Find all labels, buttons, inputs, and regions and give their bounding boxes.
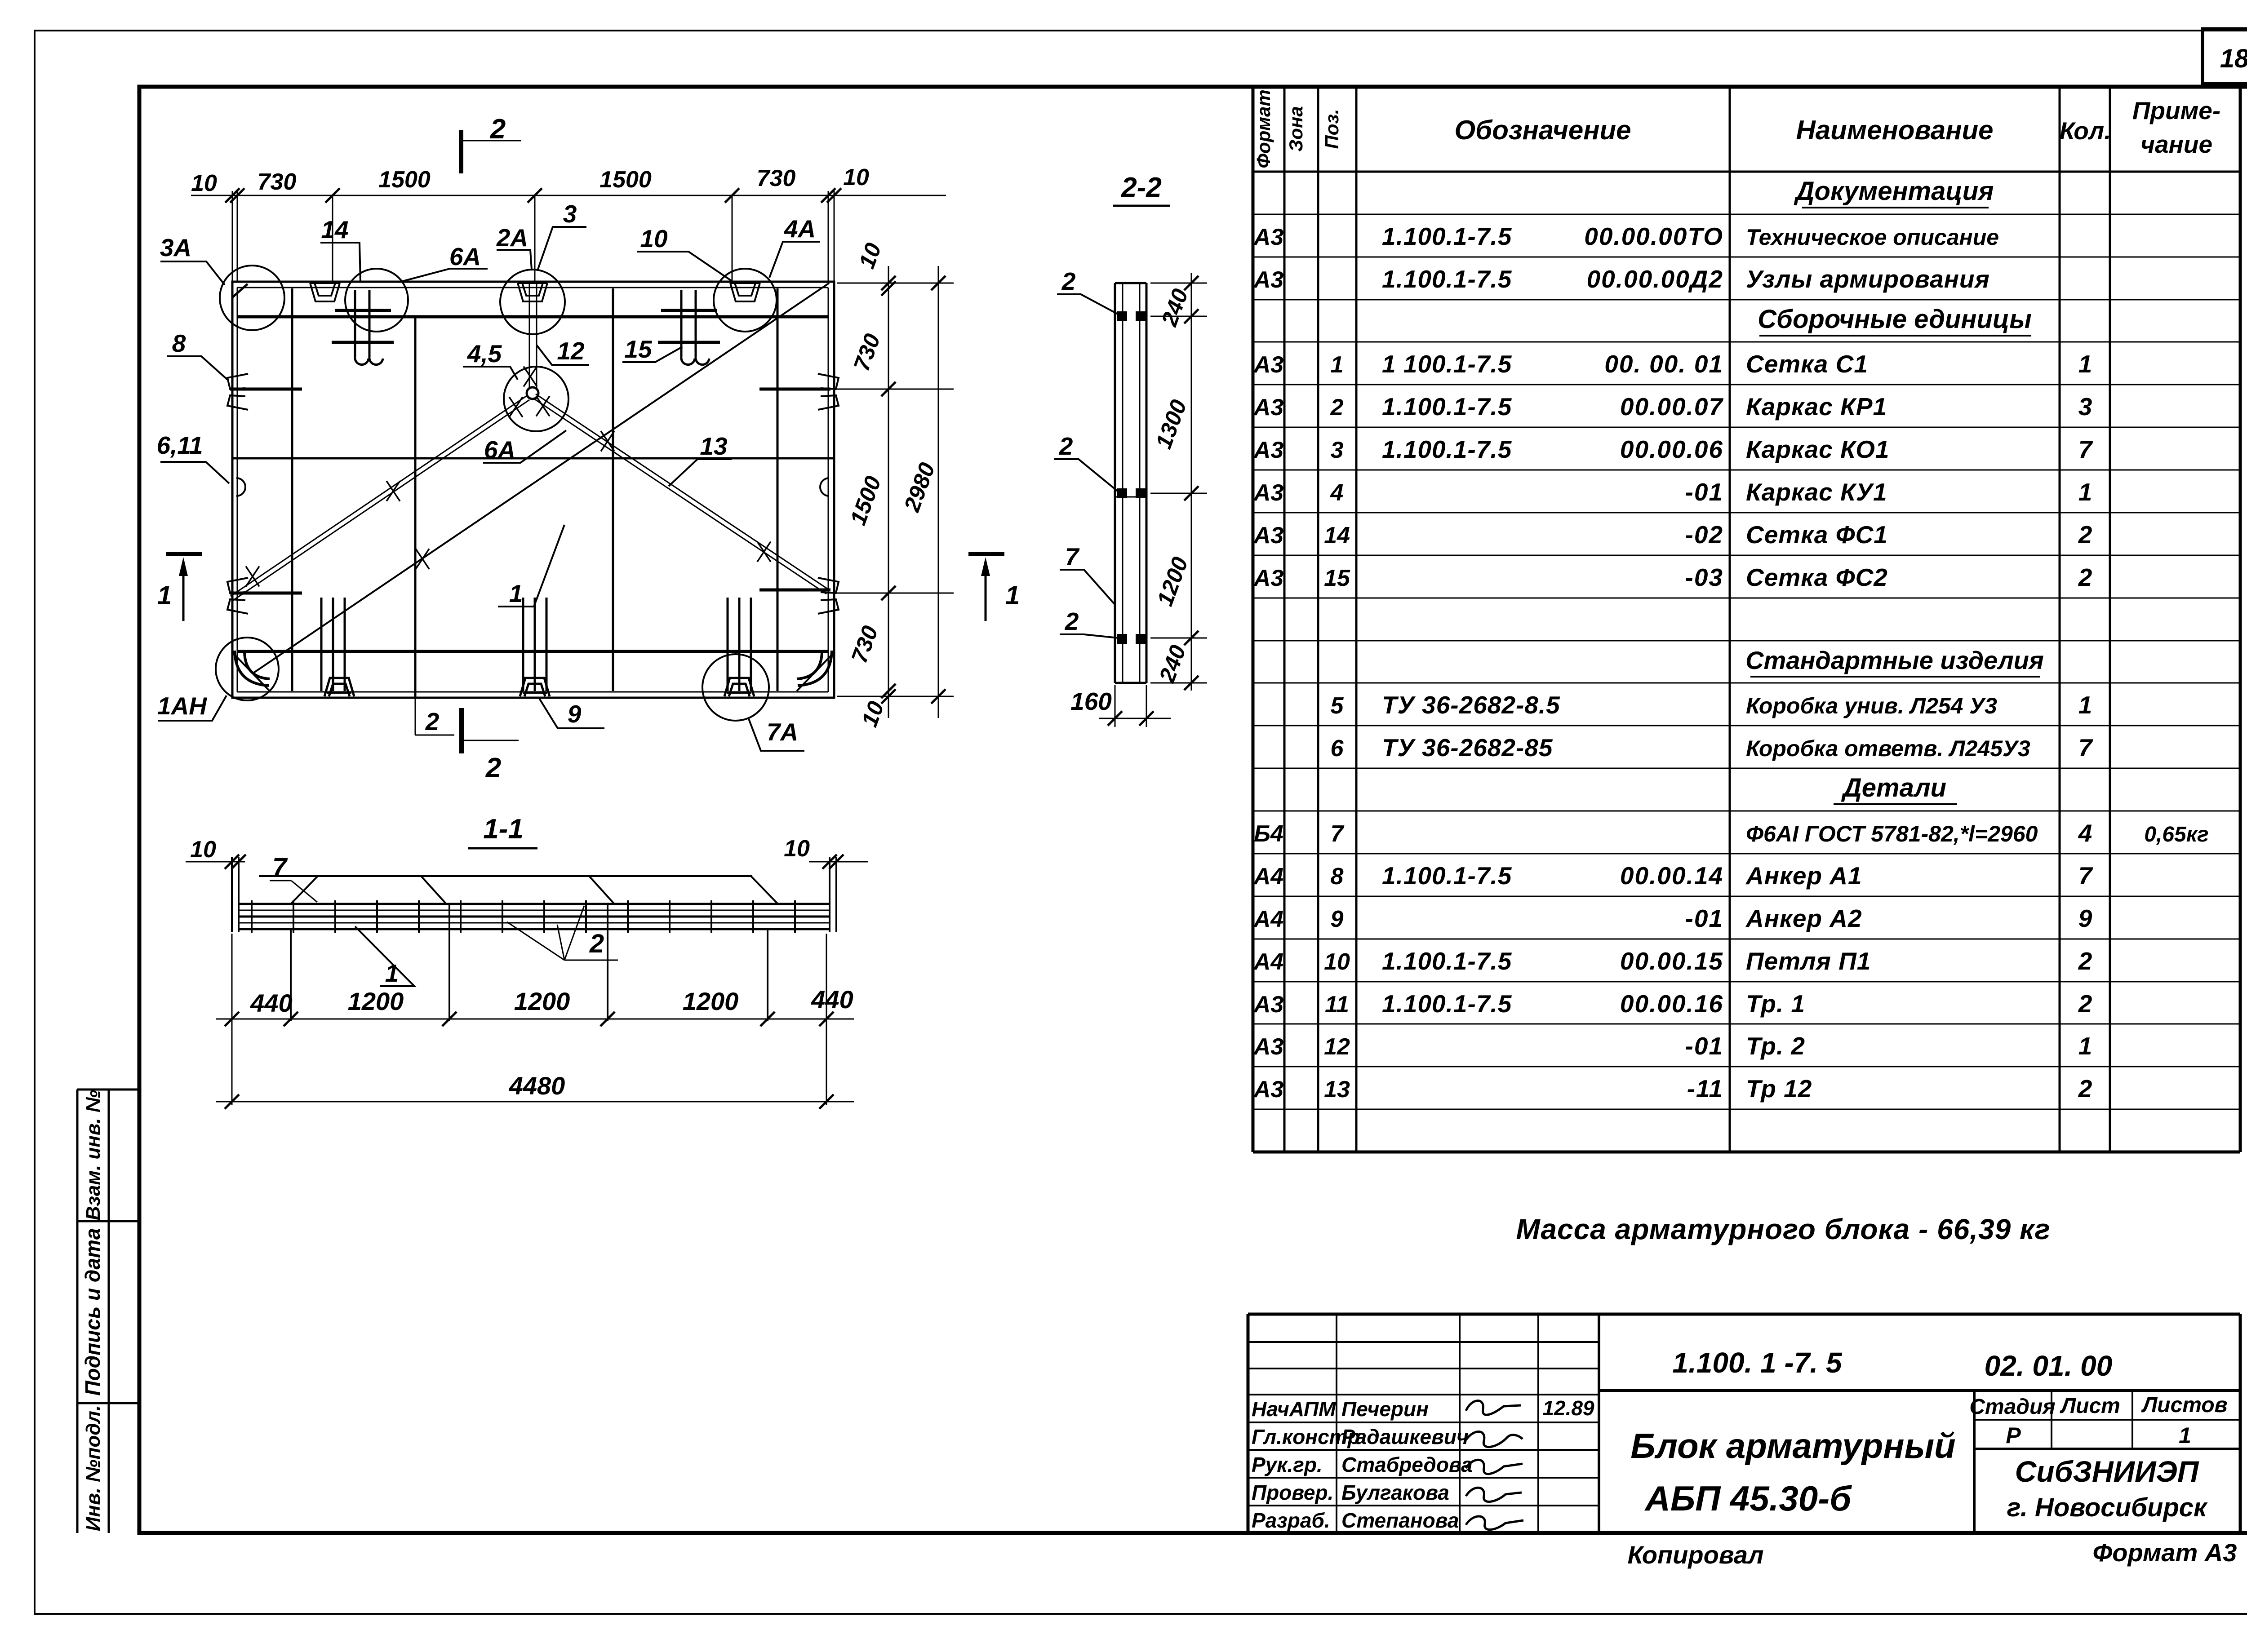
svg-text:2: 2 — [2078, 521, 2092, 549]
svg-text:Масса арматурного блока - 6: Масса арматурного блока - 66,39 кг — [1516, 1213, 2050, 1245]
svg-text:2: 2 — [485, 753, 501, 784]
svg-text:Техническое описание: Техническое описание — [1746, 225, 1999, 250]
svg-text:730: 730 — [258, 169, 297, 195]
svg-text:2: 2 — [1059, 432, 1073, 460]
svg-text:6А: 6А — [449, 243, 481, 270]
svg-text:00. 00. 01: 00. 00. 01 — [1604, 350, 1723, 378]
svg-text:2: 2 — [425, 708, 440, 735]
svg-text:7: 7 — [1331, 821, 1345, 847]
svg-text:Копировал: Копировал — [1627, 1541, 1763, 1569]
svg-text:Блок арматурный: Блок арматурный — [1630, 1426, 1955, 1466]
svg-text:НачАПМ: НачАПМ — [1252, 1397, 1337, 1421]
svg-text:Лист: Лист — [2060, 1394, 2120, 1418]
svg-text:А4: А4 — [1253, 906, 1284, 932]
svg-text:02. 01. 00: 02. 01. 00 — [1985, 1350, 2113, 1382]
svg-text:1500: 1500 — [599, 167, 652, 193]
svg-text:А3: А3 — [1253, 480, 1284, 506]
svg-text:7: 7 — [272, 853, 288, 882]
svg-text:Р: Р — [2006, 1423, 2021, 1448]
svg-text:1: 1 — [157, 581, 172, 610]
svg-text:Б4: Б4 — [1254, 821, 1283, 847]
svg-text:Наименование: Наименование — [1796, 115, 1993, 145]
svg-text:7А: 7А — [767, 718, 798, 746]
svg-text:Каркас КУ1: Каркас КУ1 — [1746, 478, 1887, 506]
svg-text:1.100. 1 -7. 5: 1.100. 1 -7. 5 — [1672, 1346, 1843, 1379]
svg-text:4: 4 — [2078, 819, 2092, 847]
svg-text:А3: А3 — [1253, 437, 1284, 463]
svg-text:2980: 2980 — [899, 459, 940, 515]
svg-text:СибЗНИИЭП: СибЗНИИЭП — [2015, 1455, 2199, 1488]
svg-text:3А: 3А — [160, 234, 191, 261]
svg-text:А3: А3 — [1253, 394, 1284, 421]
svg-text:3: 3 — [2078, 393, 2092, 421]
svg-text:00.00.00ТО: 00.00.00ТО — [1584, 222, 1723, 250]
svg-text:2-2: 2-2 — [1121, 172, 1162, 203]
svg-text:1200: 1200 — [683, 987, 739, 1015]
svg-text:А3: А3 — [1253, 565, 1284, 591]
svg-text:15: 15 — [624, 335, 653, 363]
svg-text:А3: А3 — [1253, 1034, 1284, 1060]
svg-text:1: 1 — [509, 580, 523, 607]
svg-text:9: 9 — [2078, 904, 2092, 932]
svg-text:10: 10 — [784, 836, 810, 862]
svg-text:2: 2 — [1330, 394, 1344, 421]
svg-text:Сетка ФС1: Сетка ФС1 — [1746, 521, 1888, 549]
svg-text:Формат А3: Формат А3 — [2093, 1538, 2237, 1567]
svg-text:Приме-: Приме- — [2132, 97, 2220, 124]
svg-text:1 100.1-7.5: 1 100.1-7.5 — [1382, 350, 1512, 378]
svg-text:А3: А3 — [1253, 267, 1284, 293]
svg-text:А4: А4 — [1253, 949, 1284, 975]
svg-text:2А: 2А — [496, 224, 528, 252]
svg-text:-01: -01 — [1685, 904, 1724, 932]
svg-text:18: 18 — [2220, 44, 2247, 73]
svg-text:чание: чание — [2140, 130, 2212, 158]
svg-text:3: 3 — [1331, 437, 1344, 463]
svg-text:Каркас КР1: Каркас КР1 — [1746, 393, 1887, 421]
svg-text:10: 10 — [190, 837, 216, 863]
svg-text:15: 15 — [1324, 565, 1350, 591]
svg-text:Подпись и дата: Подпись и дата — [81, 1228, 104, 1396]
svg-text:1200: 1200 — [514, 987, 570, 1015]
svg-text:Поз.: Поз. — [1321, 109, 1342, 149]
svg-text:1: 1 — [1005, 581, 1020, 610]
svg-text:АБП 45.30-б: АБП 45.30-б — [1644, 1479, 1852, 1518]
svg-text:4: 4 — [1330, 480, 1344, 506]
svg-text:730: 730 — [757, 165, 796, 191]
svg-text:Ф6АI ГОСТ 5781-82,*l=2960: Ф6АI ГОСТ 5781-82,*l=2960 — [1746, 821, 2038, 846]
svg-text:0,65кг: 0,65кг — [2144, 823, 2208, 846]
svg-text:Стабредова: Стабредова — [1341, 1453, 1473, 1476]
svg-text:Формат: Формат — [1253, 89, 1274, 168]
svg-text:1.100.1-7.5: 1.100.1-7.5 — [1382, 265, 1512, 293]
svg-text:8: 8 — [1331, 864, 1344, 890]
svg-text:Детали: Детали — [1841, 773, 1946, 802]
svg-text:12.89: 12.89 — [1542, 1396, 1594, 1420]
svg-text:-02: -02 — [1685, 521, 1724, 549]
svg-text:160: 160 — [1070, 687, 1112, 715]
svg-text:8: 8 — [172, 329, 186, 357]
svg-text:4,5: 4,5 — [467, 340, 502, 368]
svg-text:2: 2 — [2078, 947, 2092, 975]
svg-text:Провер.: Провер. — [1252, 1481, 1333, 1504]
svg-text:00.00.16: 00.00.16 — [1620, 990, 1723, 1018]
svg-text:1: 1 — [2078, 1032, 2092, 1060]
svg-text:2: 2 — [1061, 267, 1076, 295]
svg-text:00.00.14: 00.00.14 — [1620, 862, 1723, 890]
svg-text:1: 1 — [2078, 478, 2092, 506]
svg-text:2: 2 — [490, 114, 506, 145]
svg-text:г. Новосибирск: г. Новосибирск — [2007, 1493, 2208, 1522]
svg-text:00.00.07: 00.00.07 — [1620, 393, 1724, 421]
svg-text:1.100.1-7.5: 1.100.1-7.5 — [1382, 990, 1512, 1018]
svg-text:-01: -01 — [1685, 478, 1724, 506]
svg-text:А3: А3 — [1253, 992, 1284, 1018]
svg-text:9: 9 — [1331, 906, 1344, 932]
svg-text:4А: 4А — [784, 215, 816, 243]
svg-text:6А: 6А — [484, 436, 515, 464]
svg-text:Инв. №подл.: Инв. №подл. — [82, 1405, 104, 1531]
svg-text:12: 12 — [1324, 1034, 1350, 1060]
svg-text:1.100.1-7.5: 1.100.1-7.5 — [1382, 435, 1512, 463]
svg-text:7: 7 — [1065, 543, 1080, 571]
svg-text:Стадия: Стадия — [1969, 1395, 2055, 1419]
svg-text:Стандартные изделия: Стандартные изделия — [1745, 646, 2044, 674]
svg-text:10: 10 — [191, 170, 217, 196]
svg-text:00.00.00Д2: 00.00.00Д2 — [1587, 265, 1723, 293]
svg-text:240: 240 — [1154, 642, 1191, 686]
svg-text:ТУ 36-2682-8.5: ТУ 36-2682-8.5 — [1382, 691, 1560, 719]
svg-text:1: 1 — [1331, 352, 1344, 378]
svg-text:2: 2 — [2078, 1075, 2092, 1103]
svg-text:14: 14 — [1324, 523, 1350, 549]
svg-text:1: 1 — [2078, 691, 2092, 719]
svg-text:440: 440 — [811, 985, 853, 1014]
svg-text:-01: -01 — [1685, 1032, 1724, 1060]
svg-text:А4: А4 — [1253, 864, 1284, 890]
svg-text:10: 10 — [1324, 949, 1350, 975]
svg-text:Тр. 1: Тр. 1 — [1746, 990, 1805, 1018]
svg-text:А3: А3 — [1253, 224, 1284, 250]
svg-text:9: 9 — [568, 700, 582, 728]
svg-text:А3: А3 — [1253, 1076, 1284, 1103]
svg-text:6: 6 — [1331, 735, 1344, 762]
svg-text:440: 440 — [250, 989, 292, 1017]
svg-text:1.100.1-7.5: 1.100.1-7.5 — [1382, 947, 1512, 975]
svg-text:Зона: Зона — [1285, 106, 1306, 151]
svg-text:ТУ 36-2682-85: ТУ 36-2682-85 — [1382, 734, 1553, 762]
svg-text:1300: 1300 — [1151, 396, 1192, 452]
svg-text:Разраб.: Разраб. — [1252, 1509, 1330, 1532]
svg-text:1: 1 — [2179, 1423, 2191, 1448]
svg-text:1200: 1200 — [1152, 554, 1193, 609]
svg-text:Анкер А1: Анкер А1 — [1745, 862, 1862, 890]
svg-text:Документация: Документация — [1794, 177, 1994, 206]
svg-text:13: 13 — [700, 432, 727, 460]
svg-text:Анкер А2: Анкер А2 — [1745, 904, 1862, 932]
svg-text:1.100.1-7.5: 1.100.1-7.5 — [1382, 862, 1512, 890]
svg-text:Сетка С1: Сетка С1 — [1746, 350, 1868, 378]
svg-text:10: 10 — [857, 698, 889, 730]
svg-text:10: 10 — [843, 164, 869, 190]
svg-text:2: 2 — [589, 929, 604, 958]
svg-text:2: 2 — [2078, 990, 2092, 1018]
svg-text:Коробка унив. Л254 У3: Коробка унив. Л254 У3 — [1746, 693, 1997, 718]
svg-text:7: 7 — [2078, 862, 2093, 890]
svg-text:1-1: 1-1 — [483, 814, 524, 845]
svg-text:Сборочные единицы: Сборочные единицы — [1758, 305, 2032, 334]
svg-text:730: 730 — [848, 330, 885, 374]
svg-text:А3: А3 — [1253, 523, 1284, 549]
svg-text:11: 11 — [1325, 992, 1349, 1018]
svg-text:Узлы армирования: Узлы армирования — [1746, 265, 1990, 293]
svg-text:Каркас КО1: Каркас КО1 — [1746, 435, 1889, 463]
svg-text:1: 1 — [2078, 350, 2092, 378]
svg-text:7: 7 — [2078, 734, 2093, 762]
svg-text:Булгакова: Булгакова — [1341, 1481, 1449, 1504]
svg-text:1.100.1-7.5: 1.100.1-7.5 — [1382, 393, 1512, 421]
svg-text:12: 12 — [557, 337, 585, 365]
svg-text:Сетка ФС2: Сетка ФС2 — [1746, 563, 1888, 591]
svg-text:Обозначение: Обозначение — [1454, 115, 1631, 145]
svg-text:Печерин: Печерин — [1341, 1397, 1429, 1421]
svg-text:Тр 12: Тр 12 — [1746, 1075, 1812, 1103]
svg-text:3: 3 — [563, 200, 577, 228]
svg-text:00.00.06: 00.00.06 — [1620, 435, 1723, 463]
svg-text:5: 5 — [1331, 693, 1344, 719]
svg-text:10: 10 — [854, 239, 886, 272]
svg-text:13: 13 — [1324, 1076, 1350, 1103]
svg-text:1500: 1500 — [378, 167, 431, 193]
svg-text:Коробка ответв. Л245У3: Коробка ответв. Л245У3 — [1746, 736, 2030, 761]
svg-text:1500: 1500 — [845, 473, 886, 528]
svg-text:00.00.15: 00.00.15 — [1620, 947, 1723, 975]
svg-text:6,11: 6,11 — [157, 431, 203, 459]
svg-text:14: 14 — [321, 216, 348, 244]
svg-text:240: 240 — [1156, 285, 1193, 330]
svg-text:Рук.гр.: Рук.гр. — [1252, 1453, 1323, 1476]
svg-text:Петля П1: Петля П1 — [1746, 947, 1871, 975]
svg-text:Листов: Листов — [2141, 1393, 2227, 1417]
svg-text:7: 7 — [2078, 435, 2093, 463]
svg-text:Степанова: Степанова — [1341, 1509, 1459, 1532]
svg-text:-11: -11 — [1687, 1075, 1723, 1103]
svg-text:1АН: 1АН — [157, 692, 207, 720]
svg-text:730: 730 — [846, 622, 883, 666]
svg-text:1200: 1200 — [348, 987, 404, 1015]
svg-text:Радашкевич: Радашкевич — [1341, 1425, 1469, 1448]
svg-text:Тр. 2: Тр. 2 — [1746, 1032, 1805, 1060]
svg-text:Кол.: Кол. — [2060, 117, 2111, 145]
svg-text:А3: А3 — [1253, 352, 1284, 378]
svg-text:2: 2 — [1065, 607, 1079, 635]
svg-text:Взам. инв. №: Взам. инв. № — [82, 1090, 104, 1221]
svg-text:4480: 4480 — [509, 1072, 565, 1100]
svg-text:10: 10 — [640, 225, 668, 252]
svg-text:2: 2 — [2078, 563, 2092, 591]
svg-text:1.100.1-7.5: 1.100.1-7.5 — [1382, 222, 1512, 250]
svg-text:-03: -03 — [1685, 563, 1724, 591]
